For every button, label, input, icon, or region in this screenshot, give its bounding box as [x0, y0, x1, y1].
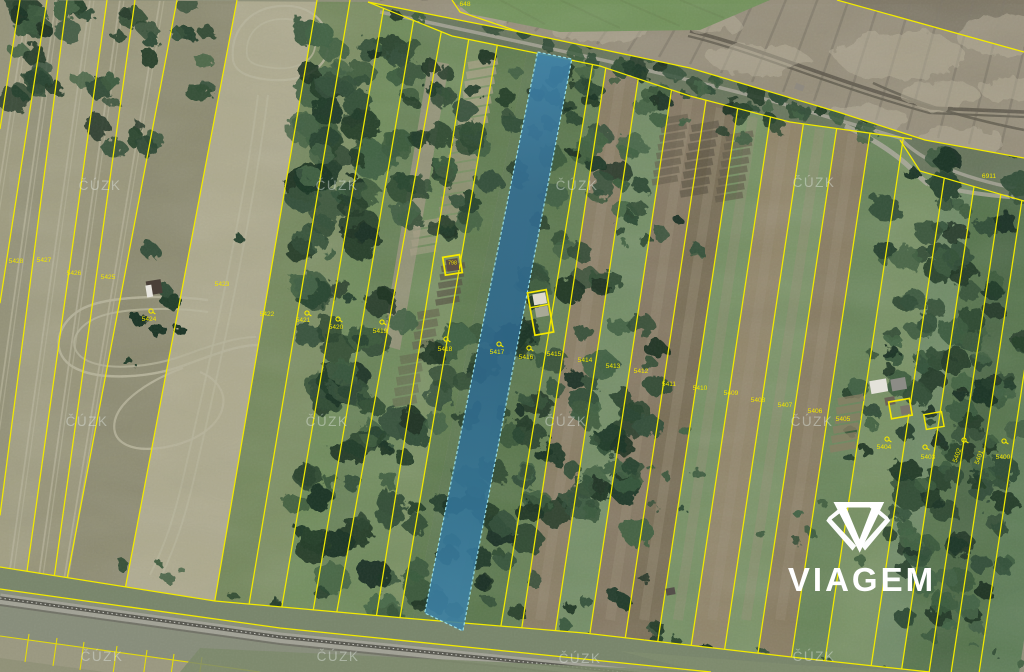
svg-text:ČÚZK: ČÚZK — [793, 649, 836, 664]
svg-text:5421: 5421 — [296, 317, 311, 324]
svg-text:ČÚZK: ČÚZK — [791, 414, 834, 429]
svg-text:5408: 5408 — [751, 397, 766, 404]
svg-text:ČÚZK: ČÚZK — [793, 175, 836, 190]
svg-text:5407: 5407 — [778, 402, 793, 409]
svg-text:648: 648 — [459, 1, 470, 8]
svg-text:5404: 5404 — [877, 444, 892, 451]
svg-text:5420: 5420 — [329, 324, 344, 331]
svg-text:5425: 5425 — [101, 274, 116, 281]
svg-text:798: 798 — [448, 261, 457, 267]
svg-text:ČÚZK: ČÚZK — [81, 649, 124, 664]
svg-text:ČÚZK: ČÚZK — [316, 178, 359, 193]
svg-text:ČÚZK: ČÚZK — [306, 414, 349, 429]
svg-text:5411: 5411 — [662, 381, 677, 388]
svg-text:5415: 5415 — [547, 351, 562, 358]
svg-text:VIAGEM: VIAGEM — [788, 561, 936, 598]
svg-text:ČÚZK: ČÚZK — [317, 649, 360, 664]
svg-text:5413: 5413 — [606, 363, 621, 370]
svg-text:ČÚZK: ČÚZK — [66, 414, 109, 429]
svg-text:5414: 5414 — [578, 357, 593, 364]
svg-text:5424: 5424 — [142, 316, 157, 323]
svg-text:5410: 5410 — [693, 385, 708, 392]
svg-text:5428: 5428 — [9, 258, 24, 265]
svg-text:5422: 5422 — [260, 311, 275, 318]
svg-text:ČÚZK: ČÚZK — [545, 414, 588, 429]
svg-text:5427: 5427 — [37, 257, 52, 264]
svg-text:5412: 5412 — [634, 368, 649, 375]
svg-text:5417: 5417 — [490, 349, 505, 356]
svg-text:5423: 5423 — [215, 281, 230, 288]
svg-text:5418: 5418 — [438, 346, 453, 353]
svg-text:5403: 5403 — [921, 454, 936, 461]
svg-text:5400: 5400 — [996, 454, 1011, 461]
svg-text:5416: 5416 — [519, 354, 534, 361]
svg-text:ČÚZK: ČÚZK — [79, 178, 122, 193]
svg-text:6911: 6911 — [982, 173, 997, 180]
svg-text:5426: 5426 — [67, 270, 82, 277]
svg-text:5409: 5409 — [724, 390, 739, 397]
svg-text:5419: 5419 — [373, 328, 388, 335]
svg-text:ČÚZK: ČÚZK — [556, 178, 599, 193]
svg-text:5405: 5405 — [836, 416, 851, 423]
svg-text:ČÚZK: ČÚZK — [559, 651, 602, 666]
